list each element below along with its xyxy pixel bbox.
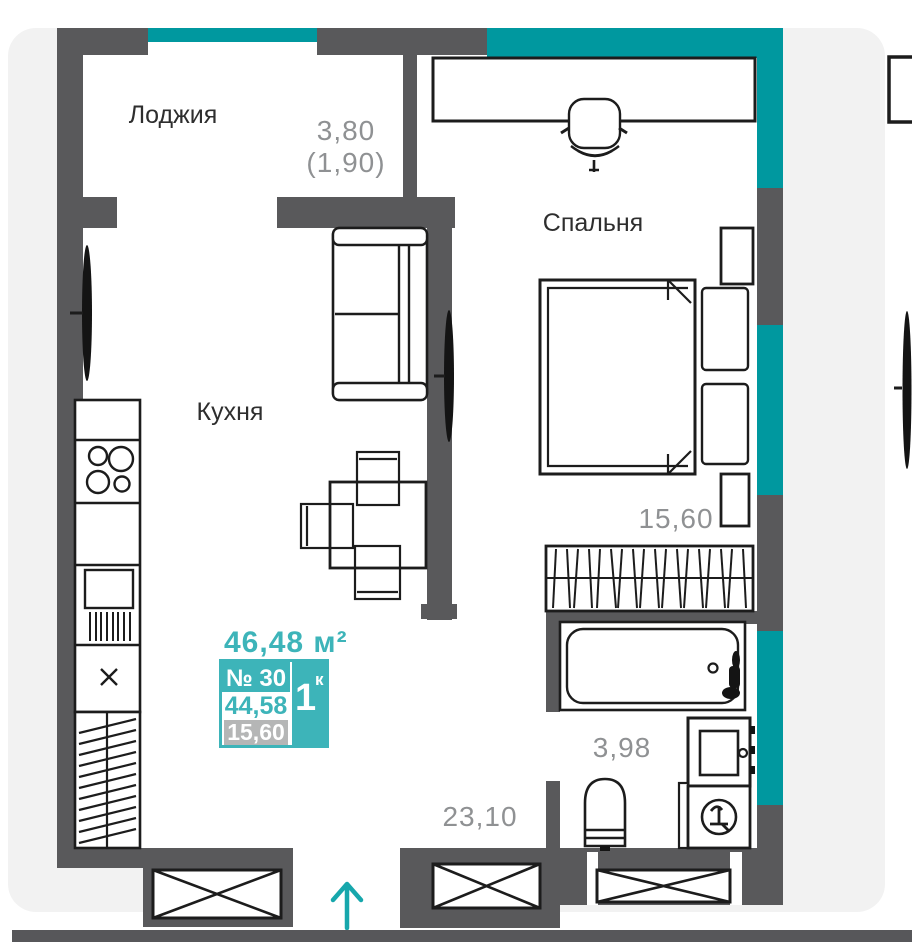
area-loggia: 3,80 xyxy=(317,115,376,146)
kitchen-wardrobe xyxy=(75,712,140,848)
built-in-wardrobe xyxy=(546,546,753,611)
area-bedroom: 15,60 xyxy=(638,503,713,534)
floor-plan-page: Лоджия 3,80 (1,90) Спальня Кухня 15,60 3… xyxy=(0,0,912,942)
apartment-badge[interactable]: 46,48 м² № 30 44,58 15,60 1 к xyxy=(219,626,348,748)
nightstand xyxy=(721,228,753,284)
room-kitchen-label: Кухня xyxy=(197,398,264,426)
toilet xyxy=(585,779,625,851)
kitchen-counter xyxy=(75,400,140,712)
room-floors xyxy=(83,42,757,930)
badge-total-area: 46,48 м² xyxy=(224,626,348,659)
area-bathroom: 3,98 xyxy=(593,732,652,763)
area-loggia-reduced: (1,90) xyxy=(306,147,385,178)
radiator-icon xyxy=(894,311,912,469)
ventilation-shaft xyxy=(153,870,281,918)
ventilation-shaft xyxy=(597,870,730,902)
neighbor-plan-fragment xyxy=(889,57,912,122)
badge-unit-number: № 30 xyxy=(226,665,286,692)
pillow-icon xyxy=(702,384,748,464)
nightstand xyxy=(721,474,749,526)
hinge-dots xyxy=(750,726,755,774)
room-bedroom-label: Спальня xyxy=(543,209,643,237)
room-loggia-label: Лоджия xyxy=(129,101,218,129)
badge-area-middle: 44,58 xyxy=(225,692,288,720)
ventilation-shaft xyxy=(433,864,540,908)
floor-plan[interactable]: Лоджия 3,80 (1,90) Спальня Кухня 15,60 3… xyxy=(0,0,912,942)
sofa xyxy=(333,228,427,400)
washing-machine xyxy=(679,783,750,848)
bathtub xyxy=(560,622,745,710)
vanity-cabinet xyxy=(688,718,755,786)
area-kitchen-living: 23,10 xyxy=(442,801,517,832)
pillow-icon xyxy=(702,288,748,370)
badge-area-bottom: 15,60 xyxy=(227,719,285,745)
wall-slit xyxy=(730,852,742,905)
bottom-bar xyxy=(12,930,912,942)
